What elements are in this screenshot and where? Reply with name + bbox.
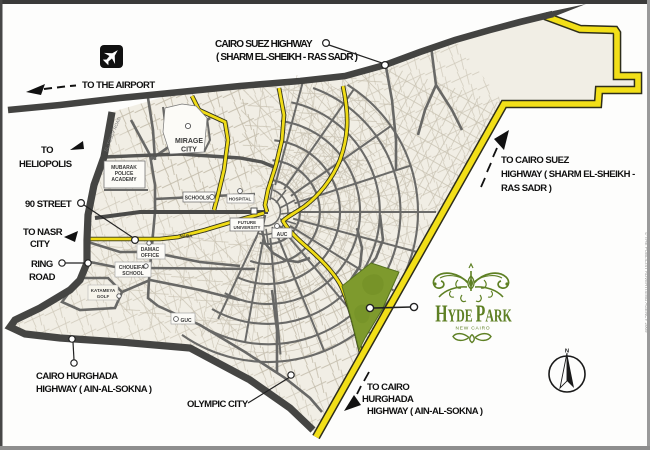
svg-text:NEW CAIRO: NEW CAIRO [456, 326, 491, 332]
svg-text:90 STREET: 90 STREET [25, 199, 72, 210]
svg-text:HIGHWAY ( AIN-AL-SOKNA ): HIGHWAY ( AIN-AL-SOKNA ) [367, 406, 483, 417]
svg-text:GUC: GUC [180, 318, 192, 324]
svg-text:HOSPITAL: HOSPITAL [229, 197, 252, 202]
svg-text:ACADEMY: ACADEMY [111, 177, 137, 183]
svg-text:OLYMPIC CITY: OLYMPIC CITY [187, 399, 249, 410]
svg-text:KATAMEYA: KATAMEYA [91, 288, 116, 293]
svg-text:NABA: NABA [180, 234, 194, 239]
svg-text:( SHARM EL-SHEIKH - RAS SADR ): ( SHARM EL-SHEIKH - RAS SADR ) [216, 52, 358, 63]
svg-text:RAS SADR ): RAS SADR ) [501, 183, 552, 194]
svg-text:CAIRO SUEZ HIGHWAY: CAIRO SUEZ HIGHWAY [215, 39, 313, 50]
svg-text:TO NASR: TO NASR [23, 227, 63, 238]
svg-text:GOLF: GOLF [97, 294, 110, 299]
svg-text:RING: RING [31, 259, 53, 270]
svg-text:UNIVERSITY: UNIVERSITY [233, 225, 260, 230]
svg-text:AUC: AUC [277, 232, 288, 238]
svg-text:CITY: CITY [181, 147, 197, 154]
svg-text:HYDE PARK: HYDE PARK [435, 301, 512, 327]
svg-text:TO THE AIRPORT: TO THE AIRPORT [82, 80, 155, 91]
svg-text:SCHOOL: SCHOOL [122, 271, 143, 277]
svg-text:HELIOPOLIS: HELIOPOLIS [19, 159, 72, 170]
svg-text:HIGHWAY ( SHARM EL-SHEIKH -: HIGHWAY ( SHARM EL-SHEIKH - [501, 169, 635, 180]
svg-text:HIGHWAY ( AIN-AL-SOKNA ): HIGHWAY ( AIN-AL-SOKNA ) [36, 384, 152, 395]
svg-text:CAIRO HURGHADA: CAIRO HURGHADA [36, 371, 118, 382]
svg-text:N: N [565, 349, 569, 355]
svg-text:OFFICE: OFFICE [141, 253, 160, 259]
svg-text:TO CAIRO: TO CAIRO [367, 382, 409, 393]
svg-text:TO CAIRO SUEZ: TO CAIRO SUEZ [501, 155, 569, 166]
svg-text:ROAD: ROAD [29, 272, 56, 283]
svg-text:TO: TO [41, 145, 53, 156]
svg-text:CITY: CITY [30, 239, 51, 250]
svg-text:MIRAGE: MIRAGE [175, 138, 203, 145]
svg-text:SCHOOLS: SCHOOLS [185, 196, 210, 202]
svg-text:HURGHADA: HURGHADA [362, 394, 414, 405]
